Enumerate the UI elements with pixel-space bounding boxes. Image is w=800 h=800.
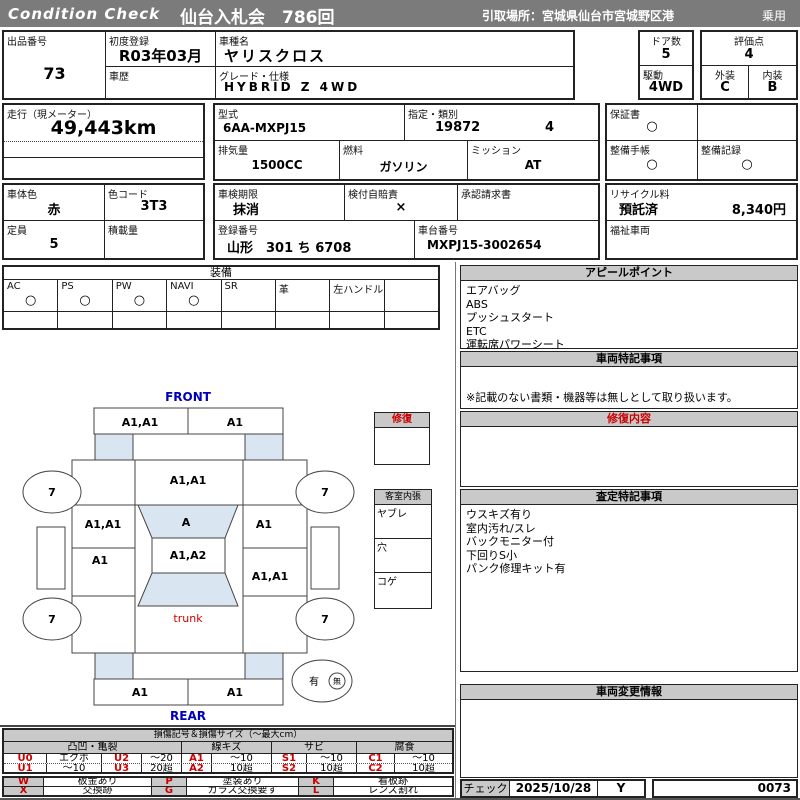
mark-code: W xyxy=(4,778,44,786)
damage-marks-table: W 板金あり P 塗装あり K 看板跡 X 交換跡 G ガラス交換要す L レン… xyxy=(2,776,454,797)
right-tire xyxy=(311,527,339,589)
appeal-item: ETC xyxy=(466,325,792,339)
mileage-empty-row2 xyxy=(4,158,203,178)
recycle-fee-cell: リサイクル料 預託済 8,340円 xyxy=(607,185,796,221)
model-code-value: 6AA-MXPJ15 xyxy=(223,121,306,135)
equipment-label: PS xyxy=(61,281,73,292)
legend-code: S2 xyxy=(272,764,307,774)
check-label-cell: チェック xyxy=(462,781,510,796)
drive-cell: 駆動 4WD xyxy=(640,66,692,98)
fuel-value: ガソリン xyxy=(340,158,467,175)
displacement-value: 1500CC xyxy=(215,158,339,172)
equipment-empty-cell xyxy=(113,312,167,328)
repair-mini-box: 修復 xyxy=(374,412,430,465)
grade-cell: グレード・仕様 HYBRID Z 4WD xyxy=(216,67,573,98)
rear-right-corner xyxy=(245,653,283,679)
legend-code: A2 xyxy=(182,764,212,774)
appeal-points-title: アピールポイント xyxy=(461,266,797,281)
maintenance-book-label: 整備手帳 xyxy=(610,142,650,157)
recycle-fee-value: 8,340円 xyxy=(732,199,786,218)
score-value: 4 xyxy=(702,47,796,62)
warranty-value: ○ xyxy=(607,119,697,134)
legend-code: S1 xyxy=(272,754,307,763)
legend-desc: ～10 xyxy=(47,764,102,774)
wheel-mark: 7 xyxy=(48,613,56,626)
model-code-label: 型式 xyxy=(218,106,238,121)
recycle-status-value: 預託済 xyxy=(619,199,658,218)
chassis-number-cell: 車台番号 MXPJ15-3002654 xyxy=(415,221,598,258)
legend-desc: ～20 xyxy=(142,754,182,763)
repair-details-title: 修復内容 xyxy=(461,412,797,427)
interior-trim-box: 客室内張 ヤブレ 穴 コゲ xyxy=(374,489,432,609)
approval-request-label: 承認請求書 xyxy=(461,186,511,201)
score-group: 評価点 4 外装 C 内装 B xyxy=(700,30,798,100)
assessment-item: 下回りS小 xyxy=(466,549,792,563)
legend-code: U0 xyxy=(4,754,47,763)
equipment-label: PW xyxy=(116,281,132,292)
fuel-label: 燃料 xyxy=(343,142,363,157)
mileage-cell: 走行（現メーター） 49,443km xyxy=(4,105,203,142)
appeal-item: ABS xyxy=(466,298,792,312)
lot-number-value: 73 xyxy=(4,64,105,83)
load-capacity-label: 積載量 xyxy=(108,222,138,237)
legend-desc: エクボ xyxy=(47,754,102,763)
damage-code: A1 xyxy=(227,686,243,699)
mark-desc: ガラス交換要す xyxy=(187,787,299,795)
repair-mini-title: 修復 xyxy=(375,413,429,428)
color-code-value: 3T3 xyxy=(105,199,203,214)
legend-group: 腐食 xyxy=(357,742,452,753)
type-value: 19872 xyxy=(435,120,480,135)
history-label: 車歴 xyxy=(109,68,129,83)
appeal-item: エアバッグ xyxy=(466,284,792,298)
registration-number-label: 登録番号 xyxy=(218,222,258,237)
mark-code: K xyxy=(299,778,334,786)
interior-grade-value: B xyxy=(749,80,796,95)
vehicle-category: 乗用 xyxy=(762,7,786,24)
score-label: 評価点 xyxy=(702,33,796,48)
damage-legend-table: 損傷記号＆損傷サイズ（～最大cm） 凸凹・亀裂 線キズ サビ 腐食 U0 エクボ… xyxy=(2,728,454,774)
assessment-item: パンク修理キット有 xyxy=(466,562,792,576)
damage-code: A1 xyxy=(92,554,108,567)
model-code-cell: 型式 6AA-MXPJ15 xyxy=(215,105,405,140)
rear-window xyxy=(138,573,238,606)
damage-code: A1,A1 xyxy=(85,518,122,531)
equipment-empty-cell xyxy=(4,312,58,328)
equipment-empty-cell xyxy=(222,312,276,328)
front-label: FRONT xyxy=(165,390,212,404)
doors-cell: ドア数 5 xyxy=(640,32,692,66)
equipment-empty-cell xyxy=(167,312,221,328)
equipment-cell-pw: PW○ xyxy=(113,280,167,311)
assessment-item: 室内汚れ/スレ xyxy=(466,522,792,536)
equipment-empty-cell xyxy=(58,312,112,328)
vehicle-id-group: 出品番号 73 初度登録 R03年03月 車歴 車種名 ヤリスクロス グレード・… xyxy=(2,30,575,100)
model-name-cell: 車種名 ヤリスクロス xyxy=(216,32,573,67)
equipment-cell-extra xyxy=(385,280,438,311)
legend-group: 凸凹・亀裂 xyxy=(4,742,182,753)
vehicle-notes-disclaimer: ※記載のない書類・機器等は無しとして取り扱います。 xyxy=(466,389,738,405)
interior-trim-row-burn: コゲ xyxy=(375,573,431,607)
interior-trim-row-tear: ヤブレ xyxy=(375,505,431,539)
appeal-points-panel: アピールポイント エアバッグ ABS プッシュスタート ETC 運転席パワーシー… xyxy=(460,265,798,349)
equipment-cell-sr: SR xyxy=(222,280,276,311)
color-capacity-group: 車体色 赤 色コード 3T3 定員 5 積載量 xyxy=(2,183,205,260)
mark-desc: 看板跡 xyxy=(334,778,452,786)
documents-empty-cell xyxy=(698,105,796,140)
type-class-label: 指定・類別 xyxy=(408,106,458,121)
insurance-cell: 検付自賠責 × xyxy=(345,185,458,220)
lot-number-cell: 出品番号 73 xyxy=(4,32,106,98)
front-right-corner xyxy=(245,434,283,460)
mileage-value: 49,443km xyxy=(4,117,203,139)
equipment-label: SR xyxy=(225,281,238,292)
legend-desc: 10超 xyxy=(307,764,357,774)
legend-desc: ～10 xyxy=(395,754,452,763)
appeal-item: 運転席パワーシート xyxy=(466,338,792,352)
legend-desc: 10超 xyxy=(212,764,272,774)
lot-number-label: 出品番号 xyxy=(7,33,47,48)
welfare-vehicle-cell: 福祉車両 xyxy=(607,221,796,258)
class-value: 4 xyxy=(545,120,554,135)
maintenance-book-cell: 整備手帳 ○ xyxy=(607,141,698,179)
vehicle-notes-panel: 車両特記事項 ※記載のない書類・機器等は無しとして取り扱います。 xyxy=(460,351,798,409)
legend-code: U2 xyxy=(102,754,142,763)
assessment-item: バックモニター付 xyxy=(466,535,792,549)
maintenance-record-value: ○ xyxy=(698,157,796,172)
transmission-value: AT xyxy=(468,158,598,172)
mark-code: L xyxy=(299,787,334,795)
score-cell: 評価点 4 xyxy=(702,32,796,66)
registration-number-cell: 登録番号 山形 301 ち 6708 xyxy=(215,221,415,258)
legend-code: C1 xyxy=(357,754,395,763)
body-color-cell: 車体色 赤 xyxy=(4,185,105,220)
inspection-value: 抹消 xyxy=(233,199,259,218)
damage-code: A1,A2 xyxy=(170,549,207,562)
legend-desc: ～10 xyxy=(307,754,357,763)
damage-code: A1 xyxy=(227,416,243,429)
vehicle-notes-title: 車両特記事項 xyxy=(461,352,797,367)
appeal-item: プッシュスタート xyxy=(466,311,792,325)
legend-code: U1 xyxy=(4,764,47,774)
displacement-cell: 排気量 1500CC xyxy=(215,141,340,179)
change-info-panel: 車両変更情報 xyxy=(460,684,798,778)
registration-number-value: 山形 301 ち 6708 xyxy=(227,237,351,256)
equipment-cell-leather: 革 xyxy=(276,280,330,311)
mileage-empty-row1 xyxy=(4,142,203,158)
inspection-cell: 車検期限 抹消 xyxy=(215,185,345,220)
rear-left-corner xyxy=(95,653,133,679)
interior-trim-title: 客室内張 xyxy=(375,490,431,505)
front-left-corner xyxy=(95,434,133,460)
maintenance-record-label: 整備記録 xyxy=(701,142,741,157)
chassis-number-value: MXPJ15-3002654 xyxy=(427,238,542,252)
legend-divider xyxy=(0,725,455,727)
interior-grade-cell: 内装 B xyxy=(749,66,796,98)
color-code-cell: 色コード 3T3 xyxy=(105,185,203,220)
load-capacity-cell: 積載量 xyxy=(105,221,203,258)
legend-title: 損傷記号＆損傷サイズ（～最大cm） xyxy=(4,730,452,742)
spare-tire-indicator xyxy=(292,660,352,702)
spare-no-label: 無 xyxy=(333,676,341,686)
inspection-registration-group: 車検期限 抹消 検付自賠責 × 承認請求書 登録番号 山形 301 ち 6708… xyxy=(213,183,600,260)
legend-desc: ～10 xyxy=(212,754,272,763)
model-name-value: ヤリスクロス xyxy=(224,45,326,66)
assessment-notes-title: 査定特記事項 xyxy=(461,490,797,505)
spare-yes-label: 有 xyxy=(309,675,319,688)
legend-code: C2 xyxy=(357,764,395,774)
assessment-notes-panel: 査定特記事項 ウスキズ有り 室内汚れ/スレ バックモニター付 下回りS小 パンク… xyxy=(460,489,798,672)
legend-group: 線キズ xyxy=(182,742,272,753)
equipment-empty-cell xyxy=(385,312,438,328)
equipment-mark: ○ xyxy=(167,293,220,308)
legend-code: U3 xyxy=(102,764,142,774)
equipment-title: 装備 xyxy=(4,267,438,280)
transmission-label: ミッション xyxy=(471,142,521,157)
equipment-cell-ps: PS○ xyxy=(58,280,112,311)
legend-desc: 10超 xyxy=(395,764,452,774)
mark-desc: 塗装あり xyxy=(187,778,299,786)
change-info-title: 車両変更情報 xyxy=(461,685,797,700)
recycle-welfare-group: リサイクル料 預託済 8,340円 福祉車両 xyxy=(605,183,798,260)
equipment-empty-cell xyxy=(330,312,384,328)
damage-code: A1 xyxy=(256,518,272,531)
doors-value: 5 xyxy=(640,47,692,62)
damage-code: A xyxy=(182,516,191,529)
damage-code: A1,A1 xyxy=(122,416,159,429)
equipment-table: 装備 AC○ PS○ PW○ NAVI○ SR 革 左ハンドル xyxy=(2,265,440,330)
spec-group: 型式 6AA-MXPJ15 指定・類別 19872 4 排気量 1500CC 燃… xyxy=(213,103,600,181)
auction-sheet: { "colors": {"header_bar":"#7b7b7b","pan… xyxy=(0,0,800,800)
pickup-location: 引取場所：宮城県仙台市宮城野区港 xyxy=(482,7,674,24)
insurance-value: × xyxy=(345,200,457,215)
left-tire xyxy=(37,527,65,589)
repair-details-panel: 修復内容 xyxy=(460,411,798,487)
fuel-cell: 燃料 ガソリン xyxy=(340,141,468,179)
equipment-label: NAVI xyxy=(170,281,193,292)
insurance-label: 検付自賠責 xyxy=(348,186,398,201)
damage-code: A1,A1 xyxy=(252,570,289,583)
trunk-label: trunk xyxy=(173,612,203,625)
damage-code: A1 xyxy=(132,686,148,699)
equipment-mark: ○ xyxy=(58,293,111,308)
type-class-cell: 指定・類別 19872 4 xyxy=(405,105,598,140)
welfare-vehicle-label: 福祉車両 xyxy=(610,222,650,237)
legend-code: A1 xyxy=(182,754,212,763)
capacity-cell: 定員 5 xyxy=(4,221,105,258)
damage-code: A1,A1 xyxy=(170,474,207,487)
doors-drive-group: ドア数 5 駆動 4WD xyxy=(638,30,694,100)
doors-label: ドア数 xyxy=(640,33,692,48)
mark-desc: 交換跡 xyxy=(44,787,152,795)
first-registration-value: R03年03月 xyxy=(106,45,215,66)
check-inspector-cell: Y xyxy=(598,781,644,796)
check-group: チェック 2025/10/28 Y xyxy=(460,779,646,798)
warranty-cell: 保証書 ○ xyxy=(607,105,698,140)
check-date-cell: 2025/10/28 xyxy=(510,781,598,796)
equipment-empty-cell xyxy=(276,312,330,328)
documents-group: 保証書 ○ 整備手帳 ○ 整備記録 ○ xyxy=(605,103,798,181)
capacity-label: 定員 xyxy=(7,222,27,237)
auction-title: 仙台入札会 786回 xyxy=(180,3,335,28)
interior-trim-row-hole: 穴 xyxy=(375,539,431,573)
exterior-grade-value: C xyxy=(702,80,748,95)
wheel-mark: 7 xyxy=(321,613,329,626)
maintenance-book-value: ○ xyxy=(607,157,697,172)
maintenance-record-cell: 整備記録 ○ xyxy=(698,141,796,179)
mark-code: P xyxy=(152,778,187,786)
title-bar: Condition Check 仙台入札会 786回 引取場所：宮城県仙台市宮城… xyxy=(0,0,800,27)
mileage-group: 走行（現メーター） 49,443km xyxy=(2,103,205,180)
exterior-grade-cell: 外装 C xyxy=(702,66,749,98)
grade-value: HYBRID Z 4WD xyxy=(224,80,360,94)
equipment-mark: ○ xyxy=(113,293,166,308)
rear-label: REAR xyxy=(170,709,206,723)
equipment-cell-ac: AC○ xyxy=(4,280,58,311)
equipment-label: AC xyxy=(7,281,21,292)
sheet-number-box: 0073 xyxy=(652,779,798,798)
equipment-mark: ○ xyxy=(4,293,57,308)
mark-desc: 板金あり xyxy=(44,778,152,786)
transmission-cell: ミッション AT xyxy=(468,141,598,179)
legend-group: サビ xyxy=(272,742,357,753)
approval-request-cell: 承認請求書 xyxy=(458,185,598,220)
first-registration-cell: 初度登録 R03年03月 xyxy=(106,32,216,67)
capacity-value: 5 xyxy=(4,237,104,252)
history-cell: 車歴 xyxy=(106,67,216,98)
wheel-mark: 7 xyxy=(48,486,56,499)
drive-value: 4WD xyxy=(640,80,692,95)
mark-code: X xyxy=(4,787,44,795)
body-color-value: 赤 xyxy=(4,199,104,218)
mark-code: G xyxy=(152,787,187,795)
equipment-cell-lhd: 左ハンドル xyxy=(330,280,384,311)
assessment-item: ウスキズ有り xyxy=(466,508,792,522)
equipment-label: 左ハンドル xyxy=(333,281,383,296)
section-divider xyxy=(455,262,456,798)
chassis-number-label: 車台番号 xyxy=(418,222,458,237)
brand-text: Condition Check xyxy=(8,5,160,23)
equipment-label: 革 xyxy=(279,281,289,296)
wheel-mark: 7 xyxy=(321,486,329,499)
mark-desc: レンズ割れ xyxy=(334,787,452,795)
displacement-label: 排気量 xyxy=(218,142,248,157)
equipment-cell-navi: NAVI○ xyxy=(167,280,221,311)
legend-desc: 20超 xyxy=(142,764,182,774)
